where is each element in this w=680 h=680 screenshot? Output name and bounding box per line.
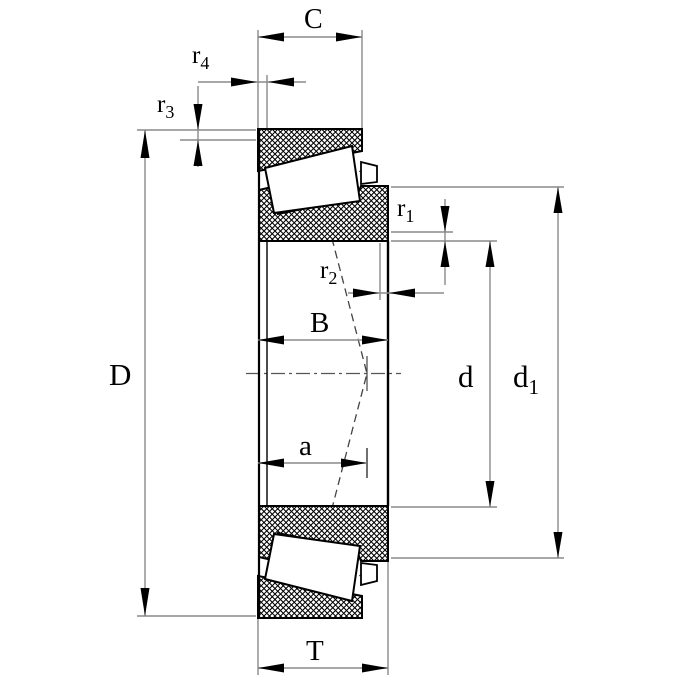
- arrow-C-left: [258, 33, 284, 42]
- arrow-D-bottom: [141, 588, 150, 616]
- cage-top: [361, 162, 377, 184]
- arrow-r2-left: [353, 289, 379, 298]
- label-d: d: [458, 359, 474, 394]
- label-B: B: [310, 307, 329, 339]
- arrow-D-top: [141, 130, 150, 158]
- arrow-a-right: [341, 459, 367, 468]
- drawing-canvas: C r4 r3 r1 r2 B D a d d1 T: [0, 0, 680, 680]
- label-r3: r3: [157, 91, 174, 122]
- arrow-a-left: [258, 459, 284, 468]
- arrow-r4-left: [231, 78, 257, 87]
- arrow-T-left: [258, 664, 284, 673]
- label-T: T: [306, 635, 324, 667]
- arrow-r2-right: [389, 289, 415, 298]
- arrow-B-left: [258, 336, 284, 345]
- arrow-r4-right: [268, 78, 294, 87]
- arrow-C-right: [336, 33, 362, 42]
- section-bottom: [258, 506, 388, 618]
- arrow-r1-bottom: [441, 241, 450, 267]
- arrow-d-bottom: [486, 481, 495, 507]
- label-r4: r4: [192, 42, 209, 73]
- label-r2: r2: [320, 257, 337, 288]
- label-d1: d1: [513, 359, 539, 399]
- arrow-r1-top: [441, 206, 450, 232]
- arrow-d-top: [486, 241, 495, 267]
- bearing-dimension-drawing: C r4 r3 r1 r2 B D a d d1 T: [0, 0, 680, 680]
- label-C: C: [304, 4, 323, 35]
- label-a: a: [299, 430, 312, 462]
- section-top: [258, 129, 388, 241]
- cage-bottom: [361, 563, 377, 585]
- arrow-d1-bottom: [554, 532, 563, 558]
- label-D: D: [109, 357, 131, 392]
- arrow-r3-top: [194, 104, 203, 130]
- arrow-d1-top: [554, 187, 563, 213]
- arrow-B-right: [362, 336, 388, 345]
- label-r1: r1: [397, 195, 414, 226]
- arrow-T-right: [362, 664, 388, 673]
- arrow-r3-bottom: [194, 140, 203, 166]
